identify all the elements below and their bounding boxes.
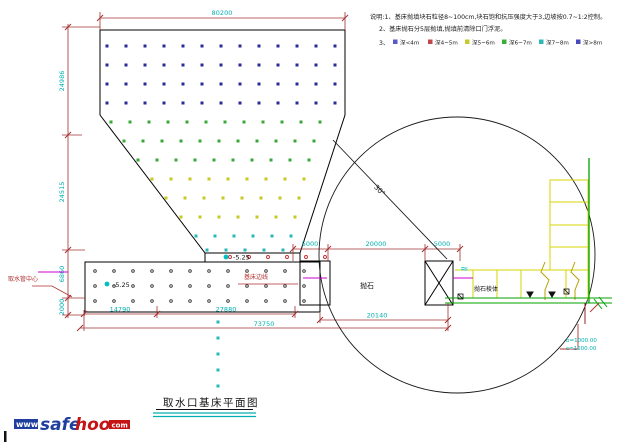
dim-left-2: 24515 [58,182,66,203]
legend-label-6: 深>8m [583,39,602,47]
elevation-label-b: -5.25 [233,254,250,262]
left-annotations: 取水管中心 基床边线 [8,272,298,297]
dim-mid-2: 20000 [366,240,387,248]
pipe-center-label: 取水管中心 [8,275,38,283]
slope-angle-label: 30° [372,183,386,197]
depth-dot-grid [94,45,337,388]
c-value-label: c=1000.00 [566,346,597,352]
red-arrow-line [590,303,599,312]
depth-legend: 深<4m 深4~5m 深5~6m 深6~7m 深7~8m 深>8m [393,39,602,47]
break-symbol-1 [541,262,549,300]
b-value-label: b=1000.00 [566,338,597,344]
dim-left-1: 24986 [58,71,66,92]
foundation-outline [85,30,453,312]
elevation-dot-a [105,282,110,287]
note-line-1: 说明:1、基床抛填块石粒径8~100cm,块石饱和抗压强度大于3,边坡按0.7~… [370,13,606,21]
dim-mid-3: 5000 [434,240,451,248]
intake-foundation-plan-drawing: 说明:1、基床抛填块石粒径8~100cm,块石饱和抗压强度大于3,边坡按0.7~… [0,0,619,448]
dim-bottom-1: 14790 [110,306,131,314]
legend-swatch-6 [576,40,581,45]
legend-swatch-5 [539,40,544,45]
elevation-label-a: -5.25 [113,281,130,289]
legend-swatch-1 [393,40,398,45]
note-line-3-prefix: 3、 [379,40,389,47]
settlement-marker-2 [549,292,555,297]
cad-drawing-page: 说明:1、基床抛填块石粒径8~100cm,块石饱和抗压强度大于3,边坡按0.7~… [0,0,619,448]
dim-bottom-4: 73750 [254,320,275,328]
notes-block: 说明:1、基床抛填块石粒径8~100cm,块石饱和抗压强度大于3,边坡按0.7~… [370,13,606,47]
bed-edge-label: 基床边线 [244,273,268,281]
drawing-title: 取水口基床平面图 [163,396,259,409]
pipe-center-leader [32,286,72,297]
block-a-outline [300,261,330,305]
water-level-wave: ≈ [460,264,468,275]
safehoo-logo: www safe hoo com [14,415,130,435]
slope-30-line [333,140,447,259]
dim-left-4: 2000 [58,299,66,316]
legend-swatch-2 [428,40,433,45]
settlement-marker-1 [527,292,533,297]
logo-hoo-text: hoo [75,415,111,435]
dim-left-3: 6860 [58,266,66,283]
green-lines [445,158,612,309]
legend-label-4: 深6~7m [509,39,532,47]
dim-bottom-3: 20140 [367,312,388,320]
note-line-2: 2、基床抛石分5层抛填,抛填前清除口门浮泥。 [379,25,506,33]
legend-label-1: 深<4m [400,39,419,47]
detail-circle-group: 30° 抛石 [303,117,612,393]
corner-mark [4,431,7,442]
rock-body-label: 抛石棱体 [474,285,498,293]
legend-swatch-3 [465,40,470,45]
elevation-markers: -5.25 -5.25 [105,254,250,290]
elevation-dot-b [224,255,229,260]
funnel-outline [100,30,345,253]
fill-rock-label: 抛石 [360,281,374,290]
dim-bottom-2: 27880 [216,306,237,314]
legend-swatch-4 [502,40,507,45]
logo-www-text: www [16,420,39,429]
break-symbol-2 [571,262,579,300]
detail-circle [319,117,595,393]
legend-label-3: 深5~6m [472,39,495,47]
dim-mid-1: 5000 [302,240,319,248]
yellow-step-structure [455,180,588,300]
legend-label-2: 深4~5m [435,39,458,47]
title-block: 取水口基床平面图 [153,396,259,417]
dim-top: 80200 [212,9,233,17]
logo-com-text: com [112,422,128,430]
legend-label-5: 深7~8m [546,39,569,47]
